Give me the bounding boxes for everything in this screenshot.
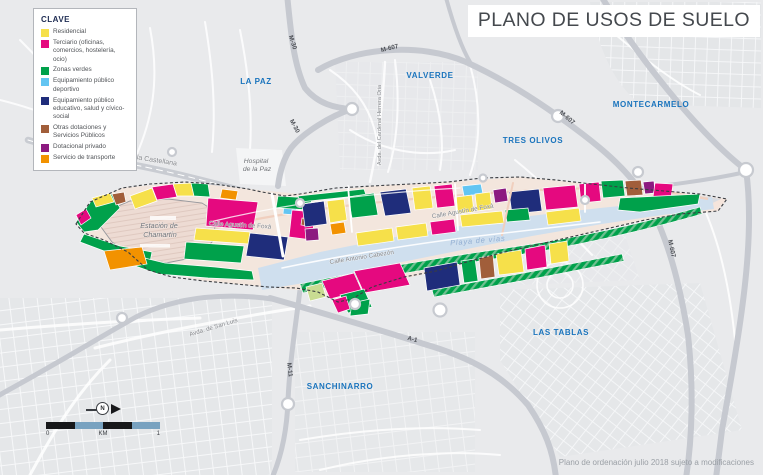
place-label-estacion-chamartin: Estación de Chamartín xyxy=(140,221,180,239)
legend-header: CLAVE xyxy=(41,15,130,24)
district-label-las-tablas: LAS TABLAS xyxy=(533,328,589,337)
footer-note: Plano de ordenación julio 2018 sujeto a … xyxy=(559,458,754,467)
legend-swatch-terciario xyxy=(41,40,49,48)
scale-bar-labels: 0 KM 1 xyxy=(46,431,160,437)
map-title: PLANO DE USOS DE SUELO xyxy=(478,9,750,31)
legend-swatch-residencial xyxy=(41,29,49,37)
legend-item-otras-dotaciones: Otras dotaciones y Servicios Públicos xyxy=(41,124,130,141)
north-arrow-icon: N xyxy=(46,401,166,419)
district-label-tres-olivos: TRES OLIVOS xyxy=(503,136,563,145)
legend-swatch-otras-dotaciones xyxy=(41,125,49,133)
legend-item-terciario: Terciario (oficinas, comercios, hosteler… xyxy=(41,39,130,64)
land-use-plan-page: LA PAZ VALVERDE TRES OLIVOS MONTECARMELO… xyxy=(0,0,763,475)
district-label-sanchinarro: SANCHINARRO xyxy=(307,382,374,391)
legend-item-educativo: Equipamiento público educativo, salud y … xyxy=(41,97,130,122)
legend-swatch-educativo xyxy=(41,97,49,105)
scale-bar xyxy=(46,422,160,429)
district-label-la-paz: LA PAZ xyxy=(240,77,272,86)
legend-item-zonas-verdes: Zonas verdes xyxy=(41,66,130,75)
legend-item-dotacional-privado: Dotacional privado xyxy=(41,143,130,152)
legend-swatch-zonas-verdes xyxy=(41,67,49,75)
scale-bar-group: N 0 KM 1 xyxy=(46,401,166,437)
legend-item-residencial: Residencial xyxy=(41,28,130,37)
street-label-herrera-oria: Avda. del Cardenal Herrera Oria xyxy=(377,84,383,165)
legend-swatch-dotacional-privado xyxy=(41,144,49,152)
place-label-hospital-de-la-paz: Hospital de la Paz xyxy=(243,158,272,173)
legend-swatch-deportivo xyxy=(41,78,49,86)
legend-swatch-transporte xyxy=(41,155,49,163)
legend-item-transporte: Servicio de transporte xyxy=(41,154,130,163)
map-title-box: PLANO DE USOS DE SUELO xyxy=(468,5,760,37)
north-letter: N xyxy=(96,402,109,415)
district-label-valverde: VALVERDE xyxy=(406,71,453,80)
district-label-montecarmelo: MONTECARMELO xyxy=(613,100,690,109)
legend-item-deportivo: Equipamiento público deportivo xyxy=(41,77,130,94)
legend-panel: CLAVE Residencial Terciario (oficinas, c… xyxy=(33,8,137,171)
